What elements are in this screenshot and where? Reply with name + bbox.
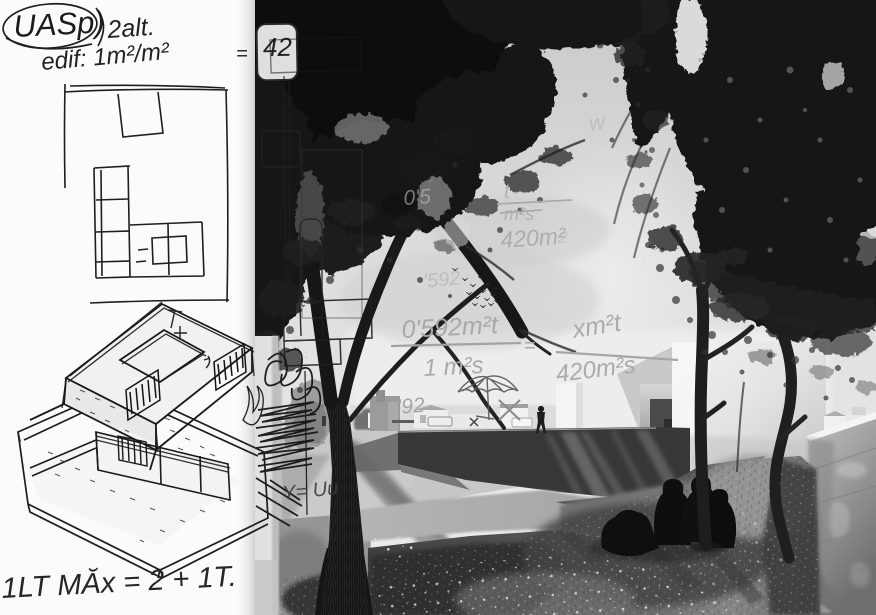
svg-text:'92: '92 (396, 394, 426, 419)
svg-text:=: = (236, 43, 248, 65)
svg-text:'592: '592 (422, 267, 461, 293)
svg-text:UASp): UASp) (13, 4, 106, 44)
svg-text:0'592m²t: 0'592m²t (401, 311, 500, 344)
svg-text:2: 2 (557, 228, 568, 247)
svg-text:42: 42 (263, 32, 293, 63)
svg-text:m²s: m²s (504, 204, 534, 224)
svg-text:0'5: 0'5 (403, 185, 432, 210)
svg-text:=: = (524, 335, 536, 357)
